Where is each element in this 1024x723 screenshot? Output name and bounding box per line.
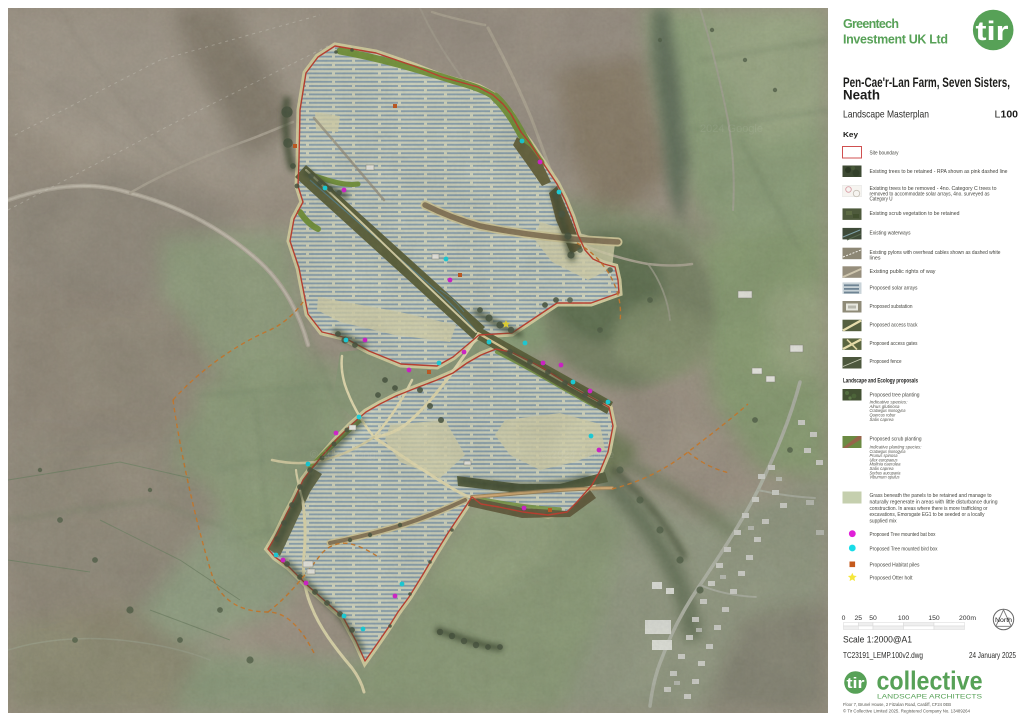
svg-text:24 January 2025: 24 January 2025 <box>969 650 1016 660</box>
svg-text:Existing waterways: Existing waterways <box>870 231 911 237</box>
svg-text:25: 25 <box>855 615 863 622</box>
svg-text:Category U: Category U <box>870 197 893 203</box>
svg-text:Floor 7, Brunel House, 2 Fitza: Floor 7, Brunel House, 2 Fitzalan Road, … <box>843 702 951 707</box>
svg-text:naturally regenerate in areas: naturally regenerate in areas with littl… <box>870 499 998 505</box>
svg-text:Proposed access gates: Proposed access gates <box>870 341 918 347</box>
svg-text:Scale 1:2000@A1: Scale 1:2000@A1 <box>843 635 912 646</box>
svg-text:Investment UK Ltd: Investment UK Ltd <box>843 33 948 47</box>
svg-text:excavations, Emorsgate EG1 to: excavations, Emorsgate EG1 to be seeded … <box>870 512 985 518</box>
svg-text:lines: lines <box>870 255 881 261</box>
svg-text:Grass beneath the panels to be: Grass beneath the panels to be retained … <box>870 493 992 499</box>
svg-text:LANDSCAPE ARCHITECTS: LANDSCAPE ARCHITECTS <box>877 695 982 701</box>
svg-text:Proposed Otter holt: Proposed Otter holt <box>870 576 913 582</box>
svg-text:tir: tir <box>976 16 1010 46</box>
svg-text:Existing pylons with overhead: Existing pylons with overhead cables sho… <box>870 250 1001 256</box>
svg-text:Proposed Tree mounted bird box: Proposed Tree mounted bird box <box>870 546 938 552</box>
svg-text:Landscape and Ecology proposal: Landscape and Ecology proposals <box>843 378 918 385</box>
svg-text:100: 100 <box>898 615 910 622</box>
svg-text:Existing public rights of way: Existing public rights of way <box>870 269 936 275</box>
svg-text:North: North <box>995 618 1012 624</box>
svg-text:© Tir Collective Limited 2025: © Tir Collective Limited 2025. Registere… <box>843 708 970 714</box>
svg-text:Proposed scrub planting: Proposed scrub planting <box>870 437 922 443</box>
svg-text:100: 100 <box>1001 109 1019 121</box>
svg-text:Key: Key <box>843 130 859 139</box>
svg-text:Proposed solar arrays: Proposed solar arrays <box>870 286 918 292</box>
svg-text:Proposed Habitat piles: Proposed Habitat piles <box>870 563 920 569</box>
svg-text:construction. In areas where: construction. In areas where there is mo… <box>870 506 988 512</box>
svg-text:150: 150 <box>928 615 940 622</box>
svg-text:collective: collective <box>877 666 983 696</box>
svg-text:Proposed fence: Proposed fence <box>870 359 902 365</box>
svg-text:0: 0 <box>842 615 846 622</box>
svg-text:200m: 200m <box>959 615 976 622</box>
svg-text:Proposed Tree mounted bat box: Proposed Tree mounted bat box <box>870 532 936 538</box>
svg-text:Greentech: Greentech <box>843 17 899 31</box>
svg-text:TC23191_LEMP.100v2.dwg: TC23191_LEMP.100v2.dwg <box>843 650 923 660</box>
svg-text:Site boundary: Site boundary <box>870 151 899 157</box>
svg-text:Viburnum opulus: Viburnum opulus <box>870 475 901 480</box>
svg-text:Neath: Neath <box>843 88 880 103</box>
svg-text:Landscape Masterplan: Landscape Masterplan <box>843 109 929 121</box>
svg-text:Salix caprea: Salix caprea <box>870 417 894 422</box>
svg-text:Proposed substation: Proposed substation <box>870 304 913 310</box>
svg-text:Proposed tree planting: Proposed tree planting <box>870 393 920 399</box>
svg-text:Existing scrub vegetation to b: Existing scrub vegetation to be retained <box>870 211 960 217</box>
svg-text:Proposed access track: Proposed access track <box>870 323 918 329</box>
svg-text:Existing trees to be retained: Existing trees to be retained - RPA show… <box>870 169 1008 175</box>
svg-text:50: 50 <box>869 615 877 622</box>
svg-text:tir: tir <box>847 675 865 692</box>
svg-text:supplied mix: supplied mix <box>870 519 897 525</box>
